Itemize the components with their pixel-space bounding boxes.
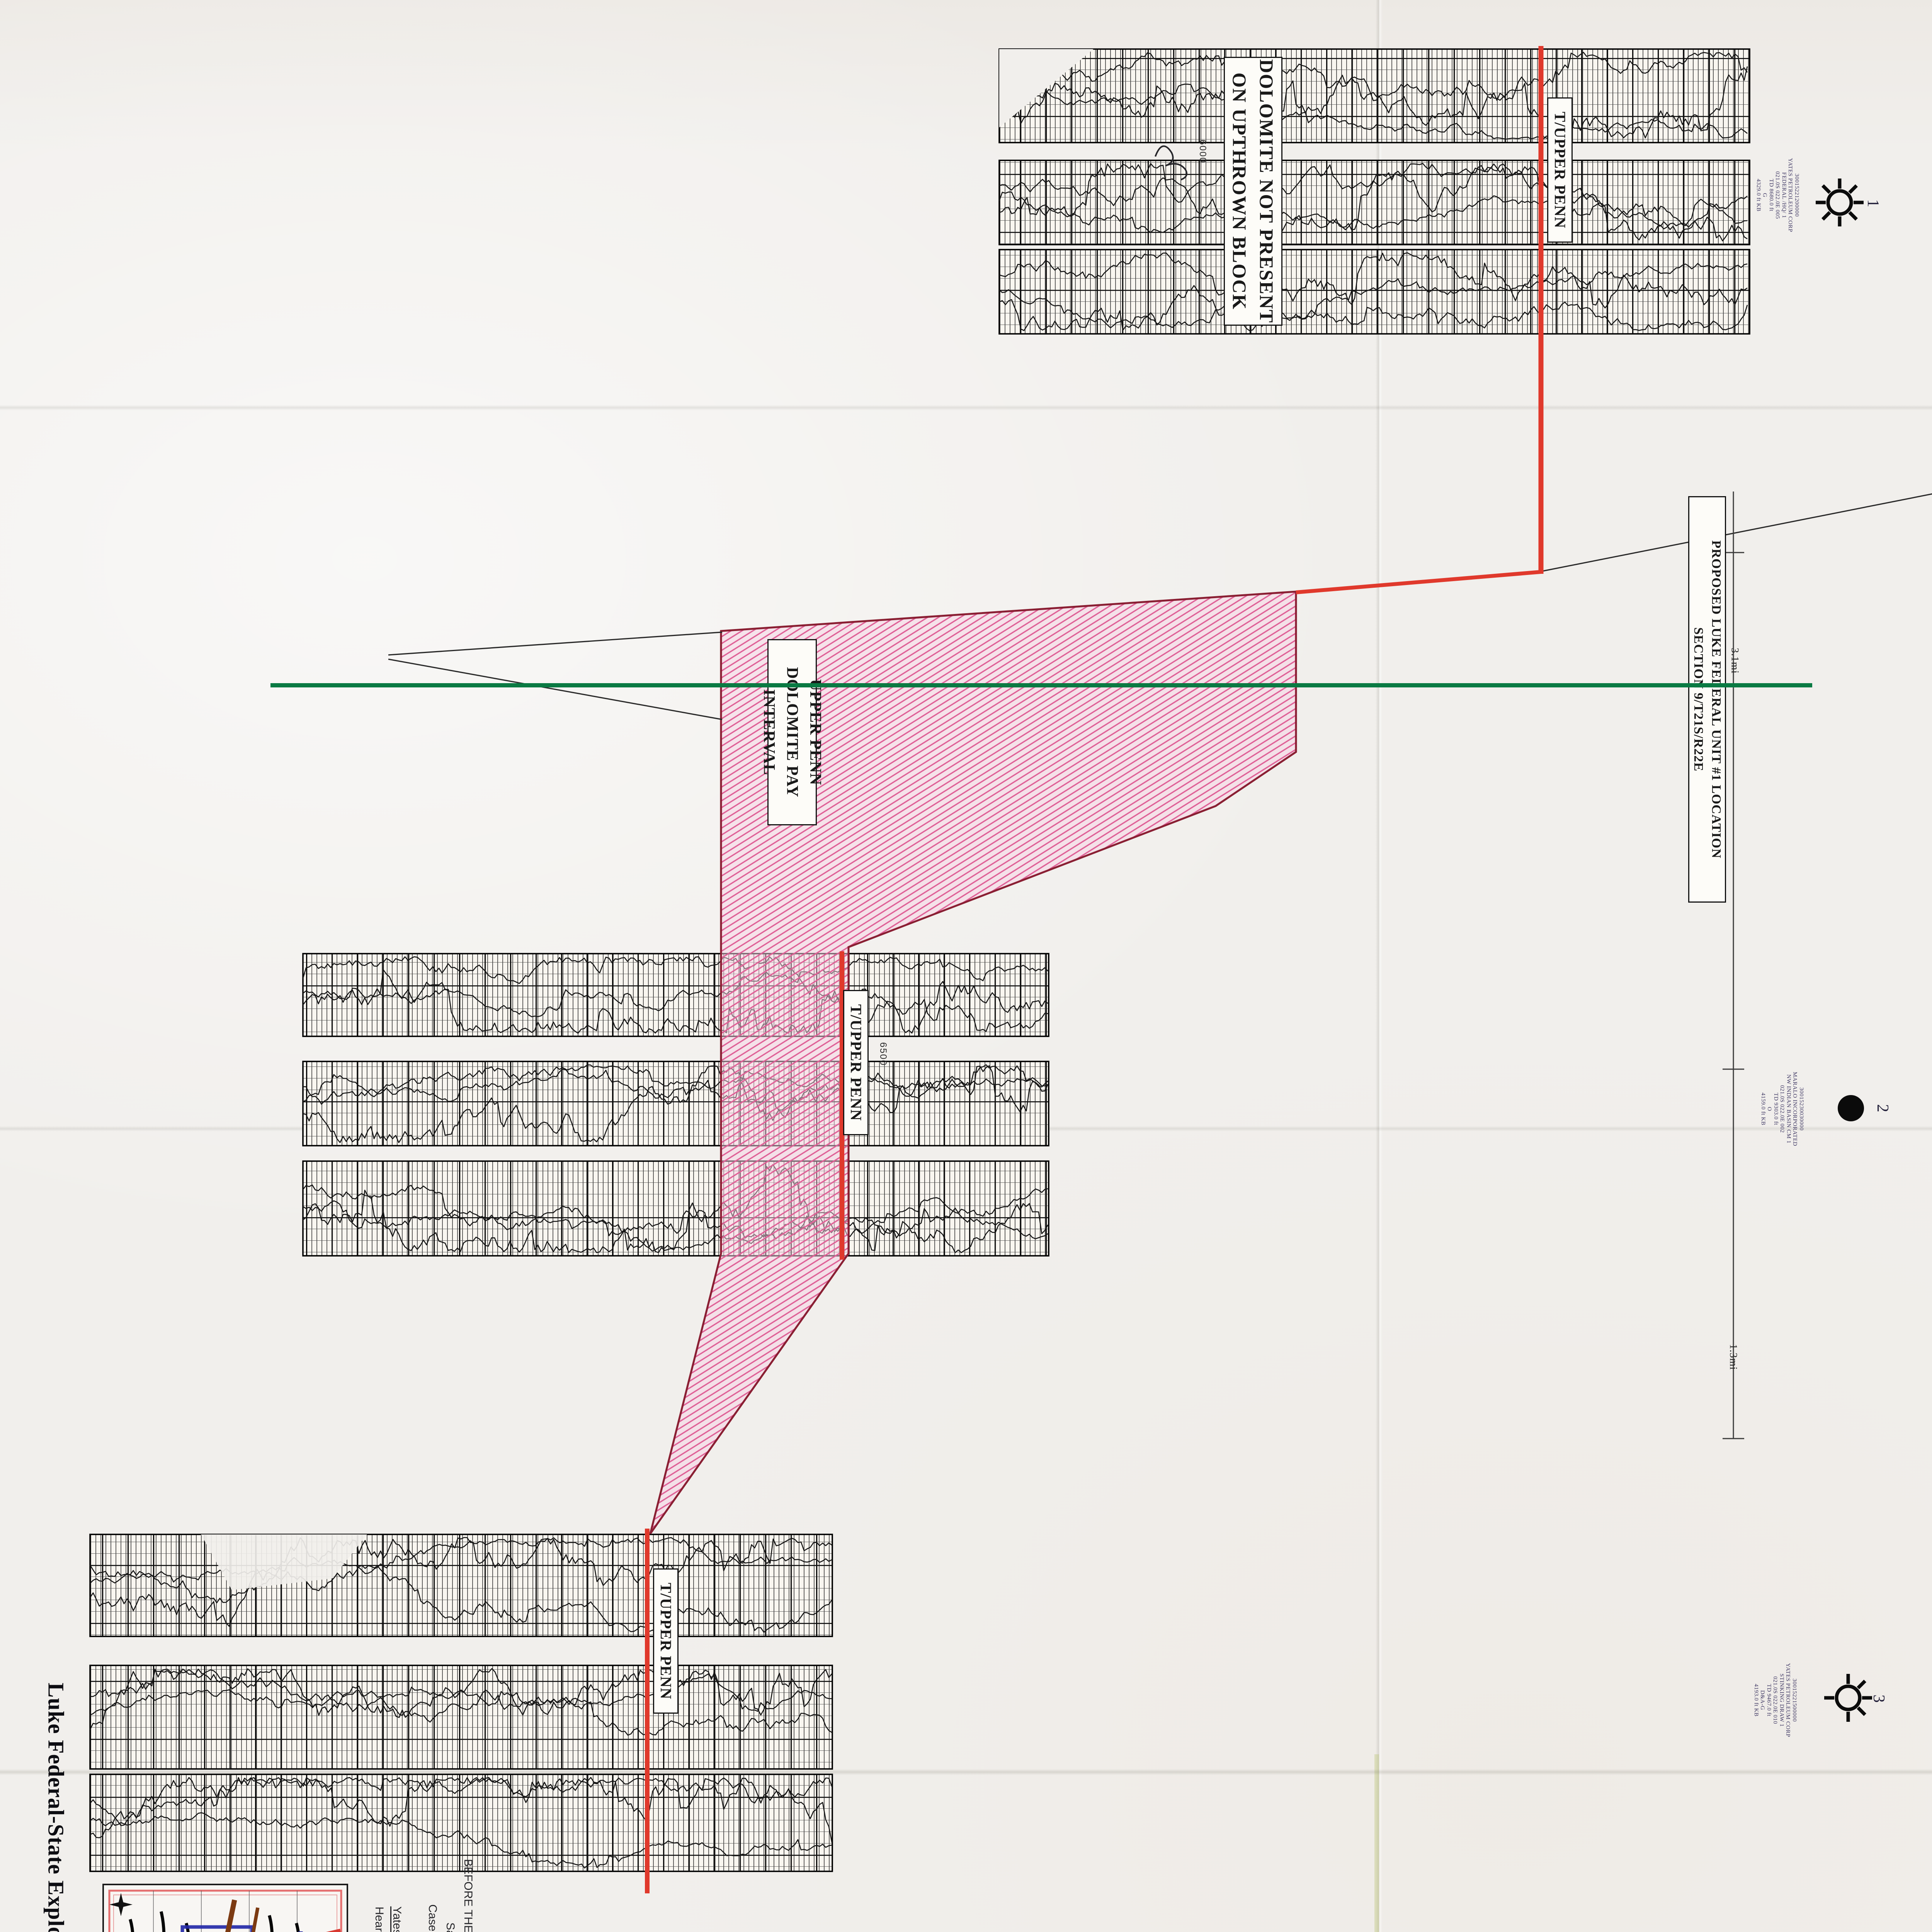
dolomite-note-line1: DOLOMITE NOT PRESENT bbox=[1253, 58, 1280, 325]
well-info-line: D&A-G bbox=[1759, 1663, 1766, 1737]
proposed-location-label: PROPOSED LUKE FEDERAL UNIT #1 LOCATION S… bbox=[1688, 496, 1726, 903]
proposed-location-line1: PROPOSED LUKE FEDERAL UNIT #1 LOCATION bbox=[1707, 497, 1725, 901]
well-info-line: 30015221200000 bbox=[1793, 158, 1800, 232]
structure-map-inset: 21S/22E 20.5S/22E Luke Federal-State Exp… bbox=[103, 1884, 347, 1932]
well-info-line: TD 9467.0 ft bbox=[1765, 1663, 1772, 1737]
well-info-line: FEDERAL /HQ/ 1 bbox=[1781, 158, 1787, 232]
well-info-line: 021.0S 022.0E 010 bbox=[1772, 1663, 1779, 1737]
stamp-line: Santa Fe, New Mexico bbox=[441, 1857, 459, 1932]
well-info-line: MARALO INCORPORATED bbox=[1792, 1072, 1798, 1146]
scanned-exhibit-page: 21S/22E 20.5S/22E Luke Federal-State Exp… bbox=[0, 0, 1932, 1932]
ocd-exhibit-stamp: BEFORE THE OIL CONSERVATION DIVISIONSant… bbox=[370, 1857, 477, 1932]
dry-hole-gas-well-icon bbox=[1824, 1674, 1872, 1722]
well-info-line: STINKING DRAW 1 bbox=[1778, 1663, 1785, 1737]
well1-header-text: 30015221200000YATES PETROLEUM CORPFEDERA… bbox=[1755, 158, 1800, 232]
pay-interval-line2: DOLOMITE PAY INTERVAL bbox=[757, 640, 804, 824]
stamp-line: Hearing Date: June 14, 2001 bbox=[370, 1857, 388, 1932]
well-log-strips bbox=[90, 49, 1750, 1871]
formation-top-label-well1: T/UPPER PENN bbox=[1547, 97, 1573, 243]
well-info-line: G bbox=[1762, 158, 1768, 232]
exhibit-title: Luke Federal-State Exploratory Unit Exhi… bbox=[43, 1683, 69, 1932]
well3-header-text: 30015221500000YATES PETROLEUM CORPSTINKI… bbox=[1753, 1663, 1798, 1737]
well-info-line: 4193.0 ft KB bbox=[1753, 1663, 1759, 1737]
depth-label-6000: 6000 bbox=[1197, 139, 1208, 163]
formation-top-label-well3: T/UPPER PENN bbox=[653, 1568, 679, 1714]
well2-header-text: 30015230030000MARALO INCORPORATEDNW INDI… bbox=[1760, 1072, 1804, 1146]
well3-number: 3 bbox=[1869, 1695, 1888, 1703]
oil-well-icon bbox=[1838, 1095, 1864, 1121]
well1-number: 1 bbox=[1864, 199, 1882, 207]
well-info-line: O bbox=[1766, 1072, 1773, 1146]
distance-label-2-3: 1.3mi bbox=[1728, 1344, 1740, 1370]
depth-label-6500: 6500 bbox=[878, 1042, 888, 1066]
gas-well-icon bbox=[1816, 179, 1864, 226]
well-info-line: YATES PETROLEUM CORP bbox=[1787, 158, 1794, 232]
dolomite-note-line2: ON UPTHROWN BLOCK bbox=[1226, 58, 1253, 325]
stamp-line: Case No. 12676 Exhibit No. 7 bbox=[423, 1857, 441, 1932]
distance-label-1-2: 3.1mi bbox=[1729, 648, 1741, 673]
pay-interval-label: UPPER PENN DOLOMITE PAY INTERVAL bbox=[767, 639, 817, 825]
pay-interval-line1: UPPER PENN bbox=[804, 640, 827, 824]
cross-section-drawing: 21S/22E 20.5S/22E Luke Federal-State Exp… bbox=[0, 0, 1932, 1932]
well2-number: 2 bbox=[1873, 1104, 1892, 1112]
well-info-line: 021.0S 022.0E 002 bbox=[1779, 1072, 1786, 1146]
well-info-line: TD 8680.0 ft bbox=[1768, 158, 1774, 232]
well-info-line: 4329.0 ft KB bbox=[1755, 158, 1762, 232]
well-info-line: 021.0S 022.0E 005 bbox=[1774, 158, 1781, 232]
well-info-line: YATES PETROLEUM CORP bbox=[1785, 1663, 1791, 1737]
well-info-line: 30015221500000 bbox=[1791, 1663, 1798, 1737]
formation-top-label-well2: T/UPPER PENN bbox=[843, 990, 869, 1135]
well-info-line: TD 9303.0 ft bbox=[1772, 1072, 1779, 1146]
datum-green-line bbox=[270, 683, 1812, 687]
well-info-line: 30015230030000 bbox=[1798, 1072, 1804, 1146]
well-info-line: NW INDIAN BASIN CM 1 bbox=[1785, 1072, 1792, 1146]
proposed-location-line2: SECTION 9/T21S/R22E bbox=[1689, 497, 1707, 901]
dolomite-note-label: DOLOMITE NOT PRESENT ON UPTHROWN BLOCK bbox=[1224, 57, 1282, 326]
well-info-line: 4159.0 ft KB bbox=[1760, 1072, 1766, 1146]
stamp-line: Yates Petroleum Corporation bbox=[388, 1857, 406, 1932]
stamp-line: Submitted by: bbox=[406, 1857, 423, 1932]
stamp-line: BEFORE THE OIL CONSERVATION DIVISION bbox=[459, 1857, 477, 1932]
